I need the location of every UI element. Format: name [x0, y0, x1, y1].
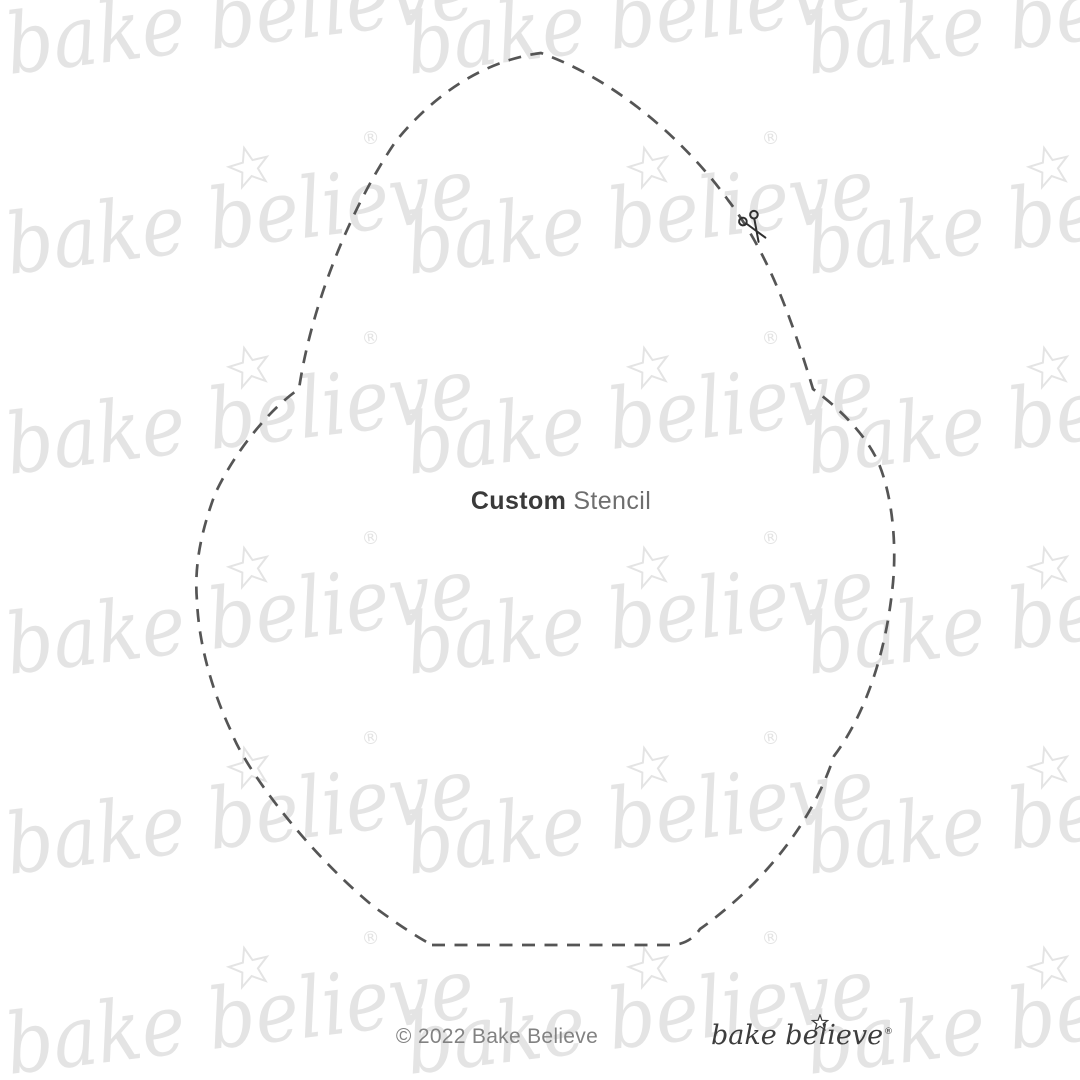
title-word-stencil: Stencil — [573, 487, 651, 515]
brand-logo-text: bake believe — [711, 1020, 883, 1051]
brand-logo-reg-mark: ® — [884, 1027, 893, 1037]
copyright-text: © 2022 Bake Believe — [396, 1024, 598, 1049]
star-icon — [811, 1008, 829, 1026]
stencil-outline — [0, 0, 1080, 1080]
stencil-page: bake believe®bake believe®bake believe®b… — [0, 0, 1080, 1080]
title-word-custom: Custom — [471, 487, 566, 515]
page-title: CustomStencil — [471, 487, 651, 515]
brand-logo: bake believe® — [711, 1016, 893, 1052]
